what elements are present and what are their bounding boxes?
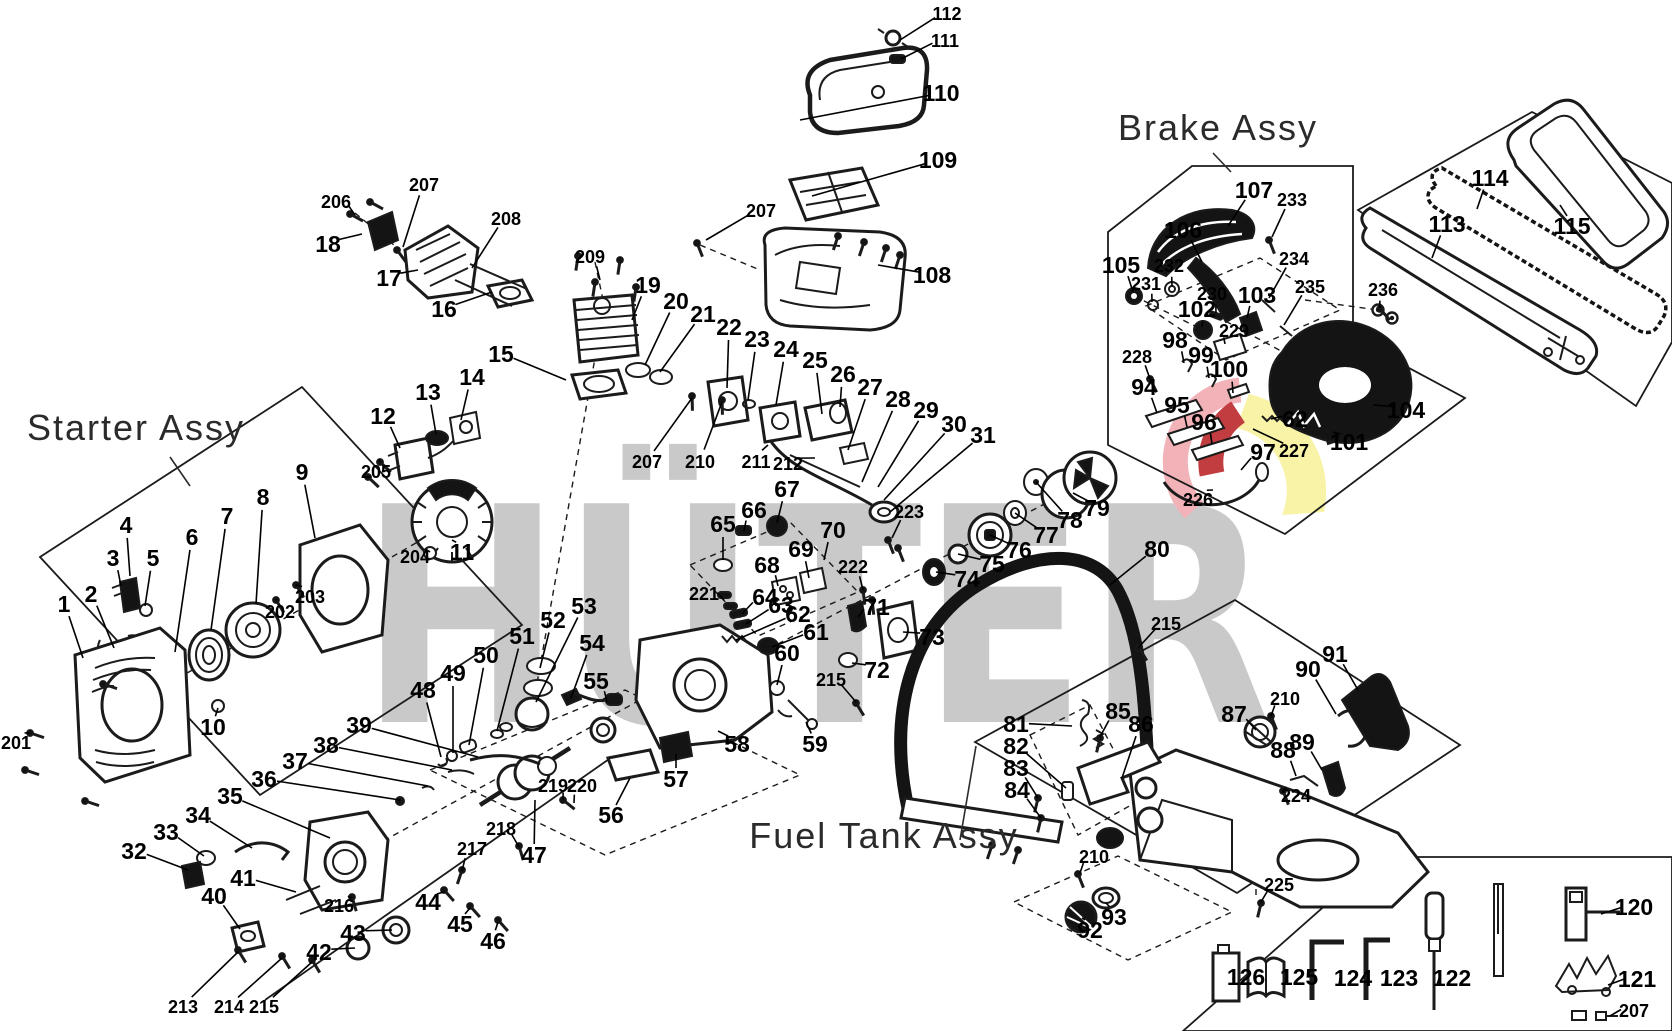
leader-line <box>534 800 535 844</box>
part-number: 20 <box>663 288 689 314</box>
callout-2: 2 <box>85 581 114 648</box>
callout-12: 12 <box>370 403 400 448</box>
air-filter-cover-sketch <box>808 48 928 133</box>
muffler-sketch <box>405 226 478 298</box>
callout-114: 114 <box>1471 165 1508 209</box>
part-number: 24 <box>773 336 799 362</box>
part-number: 31 <box>970 422 996 448</box>
part-number: 80 <box>1144 536 1170 562</box>
part-number: 222 <box>838 557 868 577</box>
part-number: 111 <box>931 31 959 51</box>
part-number: 203 <box>295 587 325 607</box>
part-number: 7 <box>221 503 234 529</box>
rope-end-sketch <box>140 604 152 616</box>
callout-98: 98 <box>1162 327 1188 363</box>
part-number: 69 <box>788 536 814 562</box>
callout-215: 215 <box>249 962 312 1017</box>
leader-line <box>645 312 670 365</box>
callout-124: 124 <box>1334 965 1373 991</box>
legend-screw-b <box>1596 1012 1606 1020</box>
part-number: 224 <box>1281 786 1311 806</box>
part-number: 12 <box>370 403 396 429</box>
part-number: 207 <box>746 201 776 221</box>
part-number: 53 <box>571 593 597 619</box>
part-number: 41 <box>230 865 256 891</box>
leader-line <box>1291 761 1296 776</box>
part-number: 122 <box>1433 965 1471 991</box>
muffler-gasket-sketch <box>488 280 532 307</box>
callout-5: 5 <box>145 545 160 606</box>
clutch-cover-hole <box>1319 367 1371 403</box>
callout-126: 126 <box>1227 964 1265 990</box>
part-number: 29 <box>913 397 939 423</box>
callout-205: 205 <box>361 459 391 482</box>
callout-201: 201 <box>1 733 31 753</box>
part-number: 21 <box>690 301 716 327</box>
part-number: 207 <box>632 452 662 472</box>
part-number: 4 <box>120 512 133 538</box>
part-number: 43 <box>340 920 366 946</box>
part-number: 14 <box>459 364 485 390</box>
plug-boot-sketch <box>450 412 480 444</box>
part-number: 67 <box>774 476 800 502</box>
callout-113: 113 <box>1428 211 1465 258</box>
primer-body-sketch <box>606 694 622 705</box>
part-number: 210 <box>685 452 715 472</box>
part-number: 108 <box>913 262 952 288</box>
part-number: 214 <box>214 997 244 1017</box>
brake-band-end <box>1256 463 1268 481</box>
part-number: 44 <box>415 889 441 915</box>
part-number: 76 <box>1006 537 1032 563</box>
part-number: 235 <box>1295 277 1325 297</box>
part-number: 28 <box>885 386 911 412</box>
callout-47: 47 <box>521 800 547 868</box>
callout-235: 235 <box>1284 277 1325 325</box>
part-number: 215 <box>249 997 279 1017</box>
leader-line <box>1152 398 1157 413</box>
callout-44: 44 <box>415 889 444 915</box>
part-number: 70 <box>820 517 846 543</box>
leader-line <box>305 485 315 538</box>
leader-line <box>210 821 252 848</box>
callout-120: 120 <box>1601 894 1653 920</box>
leader-line <box>69 616 83 658</box>
part-number: 233 <box>1277 190 1307 210</box>
part-number: 9 <box>296 459 309 485</box>
part-number: 234 <box>1279 249 1309 269</box>
callout-45: 45 <box>447 908 473 937</box>
part-number: 79 <box>1084 495 1110 521</box>
callout-91: 91 <box>1322 641 1358 690</box>
part-number: 62 <box>1282 406 1308 432</box>
part-number: 89 <box>1289 729 1315 755</box>
part-number: 98 <box>1162 327 1188 353</box>
starter-grip-sketch <box>120 578 140 612</box>
part-number: 55 <box>583 668 609 694</box>
part-number: 123 <box>1380 965 1418 991</box>
leader-line <box>366 930 392 931</box>
leader-line <box>1232 382 1233 393</box>
callout-204: 204 <box>400 547 430 567</box>
callout-89: 89 <box>1289 729 1322 770</box>
tank-port-b <box>1138 808 1162 832</box>
leader-line <box>900 18 935 40</box>
part-number: 85 <box>1105 698 1131 724</box>
leader-line <box>211 529 225 630</box>
part-number: 8 <box>257 484 270 510</box>
callout-7: 7 <box>211 503 233 630</box>
leader-line <box>178 838 204 856</box>
leader-line <box>276 599 277 600</box>
title-leader-line <box>1213 153 1231 172</box>
part-number: 71 <box>864 594 890 620</box>
washer-65-sketch <box>714 559 732 571</box>
bumper-spike-icon <box>1556 956 1616 992</box>
part-number: 37 <box>282 748 308 774</box>
part-number: 216 <box>324 896 354 916</box>
part-number: 112 <box>932 4 961 24</box>
part-number: 215 <box>1151 614 1181 634</box>
part-number: 51 <box>509 623 535 649</box>
callout-207: 207 <box>1610 1001 1649 1021</box>
callout-111: 111 <box>901 31 959 59</box>
part-number: 77 <box>1033 522 1059 548</box>
part-number: 15 <box>488 341 514 367</box>
bushing-72-sketch <box>839 653 857 667</box>
part-number: 50 <box>473 642 499 668</box>
part-number: 23 <box>744 326 770 352</box>
callout-18: 18 <box>315 231 362 257</box>
part-number: 19 <box>635 272 661 298</box>
crank-gear <box>538 757 556 775</box>
callout-15: 15 <box>488 341 566 380</box>
callout-13: 13 <box>415 379 441 434</box>
leader-line <box>192 952 238 997</box>
part-number: 66 <box>741 497 767 523</box>
leader-line <box>514 358 566 380</box>
assembly-title-text: Brake Assy <box>1118 107 1318 148</box>
part-number: 33 <box>153 819 179 845</box>
callout-203: 203 <box>295 585 325 607</box>
pin-235-sketch <box>1280 326 1292 336</box>
part-number: 5 <box>147 545 160 571</box>
part-number: 91 <box>1322 641 1348 667</box>
leader-line <box>748 352 755 400</box>
part-number: 207 <box>409 175 439 195</box>
part-number: 126 <box>1227 964 1265 990</box>
part-number: 211 <box>741 452 770 472</box>
callout-23: 23 <box>744 326 770 400</box>
part-number: 73 <box>919 624 945 650</box>
part-number: 18 <box>315 231 341 257</box>
plate-69-sketch <box>800 568 826 593</box>
callout-236: 236 <box>1368 280 1398 308</box>
part-number: 221 <box>689 584 719 604</box>
leader-line <box>145 571 150 606</box>
part-number: 52 <box>540 607 566 633</box>
callout-224: 224 <box>1281 786 1311 806</box>
part-number: 97 <box>1250 439 1276 465</box>
callout-216: 216 <box>324 896 354 916</box>
leader-line <box>147 854 188 870</box>
callout-11: 11 <box>450 539 475 565</box>
callout-226: 226 <box>1183 490 1213 510</box>
callout-4: 4 <box>120 512 133 576</box>
part-number: 74 <box>954 566 980 592</box>
axis-line <box>1305 300 1378 310</box>
plug-wrench-hole <box>1570 892 1582 902</box>
part-number: 90 <box>1295 656 1321 682</box>
part-number: 75 <box>979 551 1005 577</box>
part-number: 47 <box>521 842 547 868</box>
callout-1: 1 <box>58 591 83 658</box>
vent-valve-sketch <box>1062 782 1073 800</box>
oil-pickup-strip <box>235 843 288 860</box>
callout-122: 122 <box>1433 965 1471 991</box>
part-number: 10 <box>200 714 226 740</box>
callout-16: 16 <box>431 292 492 322</box>
callout-9: 9 <box>296 459 315 538</box>
part-number: 84 <box>1004 777 1030 803</box>
callout-20: 20 <box>645 288 689 365</box>
crank-bearing-sketch <box>591 718 615 742</box>
leader-line <box>339 234 362 239</box>
callout-202: 202 <box>265 599 295 622</box>
part-number: 121 <box>1618 966 1657 992</box>
throttle-rod-88 <box>1290 776 1318 786</box>
part-number: 11 <box>450 539 475 565</box>
part-number: 95 <box>1164 392 1190 418</box>
part-number: 124 <box>1334 965 1373 991</box>
plug-cap-sketch <box>426 431 448 445</box>
assembly-title-brake-assy: Brake Assy <box>1118 107 1318 172</box>
part-number: 60 <box>774 640 800 666</box>
part-number: 17 <box>376 265 402 291</box>
part-number: 39 <box>346 712 372 738</box>
part-number: 36 <box>251 766 277 792</box>
part-number: 45 <box>447 911 473 937</box>
part-number: 218 <box>486 819 516 839</box>
tank-port-a <box>1136 778 1156 798</box>
diagram-canvas: HÜTER <box>0 0 1672 1031</box>
leader-line <box>1477 189 1484 209</box>
part-number: 65 <box>710 511 736 537</box>
part-number: 120 <box>1615 894 1653 920</box>
part-number: 226 <box>1183 490 1213 510</box>
part-number: 102 <box>1178 296 1216 322</box>
grommet-36-sketch <box>396 797 404 805</box>
part-number: 209 <box>575 247 605 267</box>
legend-screw-a <box>1572 1011 1586 1020</box>
part-number: 220 <box>567 776 597 796</box>
assembly-title-text: Fuel Tank Assy <box>749 815 1018 856</box>
part-number: 215 <box>816 670 846 690</box>
part-number: 92 <box>1077 917 1103 943</box>
part-number: 210 <box>1270 689 1300 709</box>
leader-line <box>431 405 436 434</box>
part-number: 56 <box>598 802 624 828</box>
part-number: 78 <box>1057 507 1083 533</box>
bar-cover-sketch <box>1508 100 1668 268</box>
leader-line <box>776 362 783 405</box>
part-number: 13 <box>415 379 441 405</box>
part-number: 94 <box>1131 374 1157 400</box>
part-number: 106 <box>1164 217 1202 243</box>
part-number: 228 <box>1122 347 1152 367</box>
starter-housing-sketch <box>75 628 190 782</box>
grip-91-sketch <box>1342 674 1409 750</box>
callout-6: 6 <box>175 524 198 652</box>
part-number: 61 <box>803 619 829 645</box>
callout-219: 219 <box>538 776 568 800</box>
part-number: 114 <box>1471 165 1508 191</box>
wing-nut-sketch <box>886 31 900 45</box>
part-number: 30 <box>941 411 967 437</box>
callout-14: 14 <box>459 364 485 420</box>
part-number: 16 <box>431 296 457 322</box>
part-number: 72 <box>864 657 890 683</box>
part-number: 229 <box>1219 321 1249 341</box>
callout-233: 233 <box>1272 190 1307 237</box>
callout-220: 220 <box>567 776 597 803</box>
part-number: 210 <box>1079 847 1109 867</box>
part-number: 204 <box>400 547 430 567</box>
callout-210: 210 <box>1270 689 1300 716</box>
leader-line <box>403 195 419 247</box>
part-number: 26 <box>830 361 856 387</box>
part-number: 22 <box>716 314 742 340</box>
callout-24: 24 <box>773 336 799 405</box>
piston-sketch <box>516 698 548 730</box>
ring-52b <box>524 680 552 696</box>
guide-bar-slot <box>1382 230 1560 338</box>
callout-209: 209 <box>575 247 605 280</box>
intake-flange-sketch <box>650 370 672 384</box>
insulator-sketch <box>708 377 748 426</box>
part-number: 225 <box>1264 875 1294 895</box>
part-number: 201 <box>1 733 31 753</box>
part-number: 110 <box>922 80 959 106</box>
leader-line <box>256 510 262 604</box>
part-number: 3 <box>107 545 120 571</box>
part-number: 109 <box>919 147 957 173</box>
leader-line <box>1272 209 1285 237</box>
part-number: 58 <box>724 731 750 757</box>
leader-line <box>127 538 130 576</box>
part-number: 206 <box>321 192 351 212</box>
callout-123: 123 <box>1380 965 1418 991</box>
part-number: 1 <box>58 591 71 617</box>
part-number: 40 <box>201 883 227 909</box>
part-number: 100 <box>1210 356 1248 382</box>
part-number: 207 <box>1619 1001 1649 1021</box>
intake-gasket-sketch <box>626 363 650 377</box>
callout-92: 92 <box>1077 917 1103 943</box>
callout-210: 210 <box>1079 847 1109 873</box>
callout-41: 41 <box>230 865 296 892</box>
part-number: 104 <box>1387 397 1426 423</box>
part-number: 227 <box>1279 441 1309 461</box>
part-number: 231 <box>1131 274 1161 294</box>
part-number: 236 <box>1368 280 1398 300</box>
callout-125: 125 <box>1280 964 1319 990</box>
part-number: 212 <box>773 454 803 474</box>
assembly-title-text: Starter Assy <box>27 407 245 448</box>
tank-buffer-sketch <box>1097 828 1123 848</box>
callout-101: 101 <box>1330 429 1369 455</box>
part-number: 27 <box>857 374 883 400</box>
screwdriver-collar <box>1429 939 1440 951</box>
part-number: 34 <box>185 802 211 828</box>
carburetor-sketch <box>760 402 800 442</box>
part-number: 93 <box>1101 904 1127 930</box>
part-number: 32 <box>121 838 147 864</box>
part-number: 2 <box>85 581 98 607</box>
part-number: 205 <box>361 462 391 482</box>
part-number: 107 <box>1235 177 1273 203</box>
air-filter-sketch <box>790 168 878 220</box>
part-number: 213 <box>168 997 198 1017</box>
leader-line <box>175 550 190 652</box>
leader-line <box>1284 295 1302 325</box>
part-number: 49 <box>440 660 466 686</box>
part-number: 113 <box>1428 211 1465 237</box>
base-gasket-sketch <box>572 370 626 399</box>
part-number: 208 <box>491 209 521 229</box>
callout-19: 19 <box>632 272 661 320</box>
part-number: 217 <box>457 839 487 859</box>
oil-bottle-cap <box>1218 945 1229 953</box>
callout-229: 229 <box>1219 321 1249 344</box>
part-number: 54 <box>579 630 605 656</box>
exploded-parts-diagram: HÜTER <box>0 0 1672 1031</box>
part-number: 48 <box>410 677 436 703</box>
part-number: 38 <box>313 732 339 758</box>
part-number: 125 <box>1280 964 1319 990</box>
callout-208: 208 <box>472 209 521 268</box>
part-number: 6 <box>186 524 199 550</box>
callout-221: 221 <box>689 584 724 604</box>
part-number: 59 <box>802 731 828 757</box>
leader-line <box>238 958 282 997</box>
part-number: 46 <box>480 928 506 954</box>
pin-221b-sketch <box>724 603 737 609</box>
part-number: 219 <box>538 776 568 796</box>
part-number: 202 <box>265 602 295 622</box>
part-number: 86 <box>1128 711 1154 737</box>
screwdriver-handle <box>1426 893 1443 939</box>
part-number: 96 <box>1191 409 1217 435</box>
spring-232-core <box>1169 286 1175 292</box>
tensioner-gear-sketch <box>767 516 787 536</box>
part-number: 57 <box>663 766 689 792</box>
trigger-89-sketch <box>1322 762 1345 796</box>
ignition-coil-sketch <box>395 438 433 479</box>
part-number: 87 <box>1221 701 1247 727</box>
leader-line <box>706 215 749 240</box>
callout-8: 8 <box>256 484 270 604</box>
part-number: 35 <box>217 783 243 809</box>
leader-line <box>654 398 692 451</box>
part-number: 101 <box>1330 429 1369 455</box>
leader-line <box>256 880 296 892</box>
assembly-title-starter-assy: Starter Assy <box>27 407 245 486</box>
axis-line <box>700 245 760 270</box>
part-number: 115 <box>1553 213 1590 239</box>
callout-94: 94 <box>1131 374 1157 413</box>
callout-206: 206 <box>321 192 355 215</box>
